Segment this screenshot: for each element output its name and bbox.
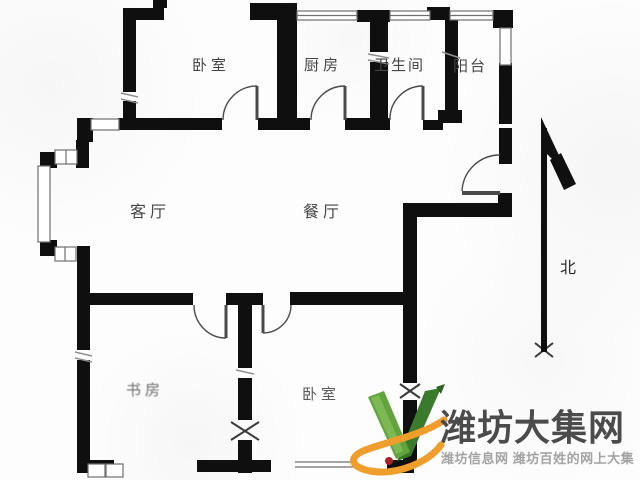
north-label: 北 <box>560 254 576 278</box>
room-label-living-room: 客厅 <box>130 198 170 222</box>
door-arc <box>390 86 423 120</box>
room-label-kitchen: 厨房 <box>304 54 342 75</box>
door-arc <box>223 86 257 120</box>
room-label-bedroom-top: 卧室 <box>192 54 230 75</box>
wall-segment <box>123 8 136 92</box>
wall-segment <box>76 140 89 168</box>
room-label-dining-room: 餐厅 <box>303 198 343 222</box>
wall-segment <box>77 293 193 305</box>
wall-segment <box>153 0 167 8</box>
wall-segment <box>250 3 297 20</box>
wall-segment <box>258 118 310 130</box>
room-label-bedroom-bottom: 卧室 <box>302 383 340 404</box>
wall-segment <box>197 460 271 472</box>
door-arc <box>462 155 500 191</box>
site-tagline: 潍坊信息网 潍坊百姓的网上大集 <box>441 448 640 467</box>
wall-segment <box>226 293 263 305</box>
north-arrow <box>541 117 576 352</box>
window <box>88 464 105 477</box>
room-label-study: 书房 <box>126 379 164 400</box>
wall-segment <box>370 20 388 52</box>
wall-segment <box>238 305 252 368</box>
wall-segment <box>277 18 297 125</box>
room-label-bathroom: 卫生间 <box>374 54 425 75</box>
room-label-balcony: 阳台 <box>453 55 487 76</box>
window <box>106 464 123 477</box>
wall-segment <box>499 63 512 124</box>
wall-segment <box>499 128 512 164</box>
door-arc <box>194 305 226 338</box>
logo-red-dot <box>385 457 393 465</box>
wall-segment <box>77 360 90 462</box>
window <box>38 166 50 242</box>
window-double-line <box>295 462 355 467</box>
floor-plan-image: 卧室 厨房 卫生间 阳台 客厅 餐厅 书房 卧室 北 潍坊大集网 潍坊信息网 潍… <box>0 0 640 480</box>
wall-segment <box>403 203 512 217</box>
window <box>91 119 119 130</box>
wall-segment <box>290 292 414 305</box>
wall-segment <box>345 118 390 130</box>
wall-segment <box>493 10 513 28</box>
site-name: 潍坊大集网 <box>440 399 640 451</box>
door-arc <box>263 305 291 333</box>
wall-segment <box>238 378 252 420</box>
window <box>500 28 511 65</box>
door-arc <box>311 86 345 120</box>
wall-segment <box>118 118 222 130</box>
site-logo-icon <box>353 384 445 472</box>
wall-segment <box>423 120 443 130</box>
